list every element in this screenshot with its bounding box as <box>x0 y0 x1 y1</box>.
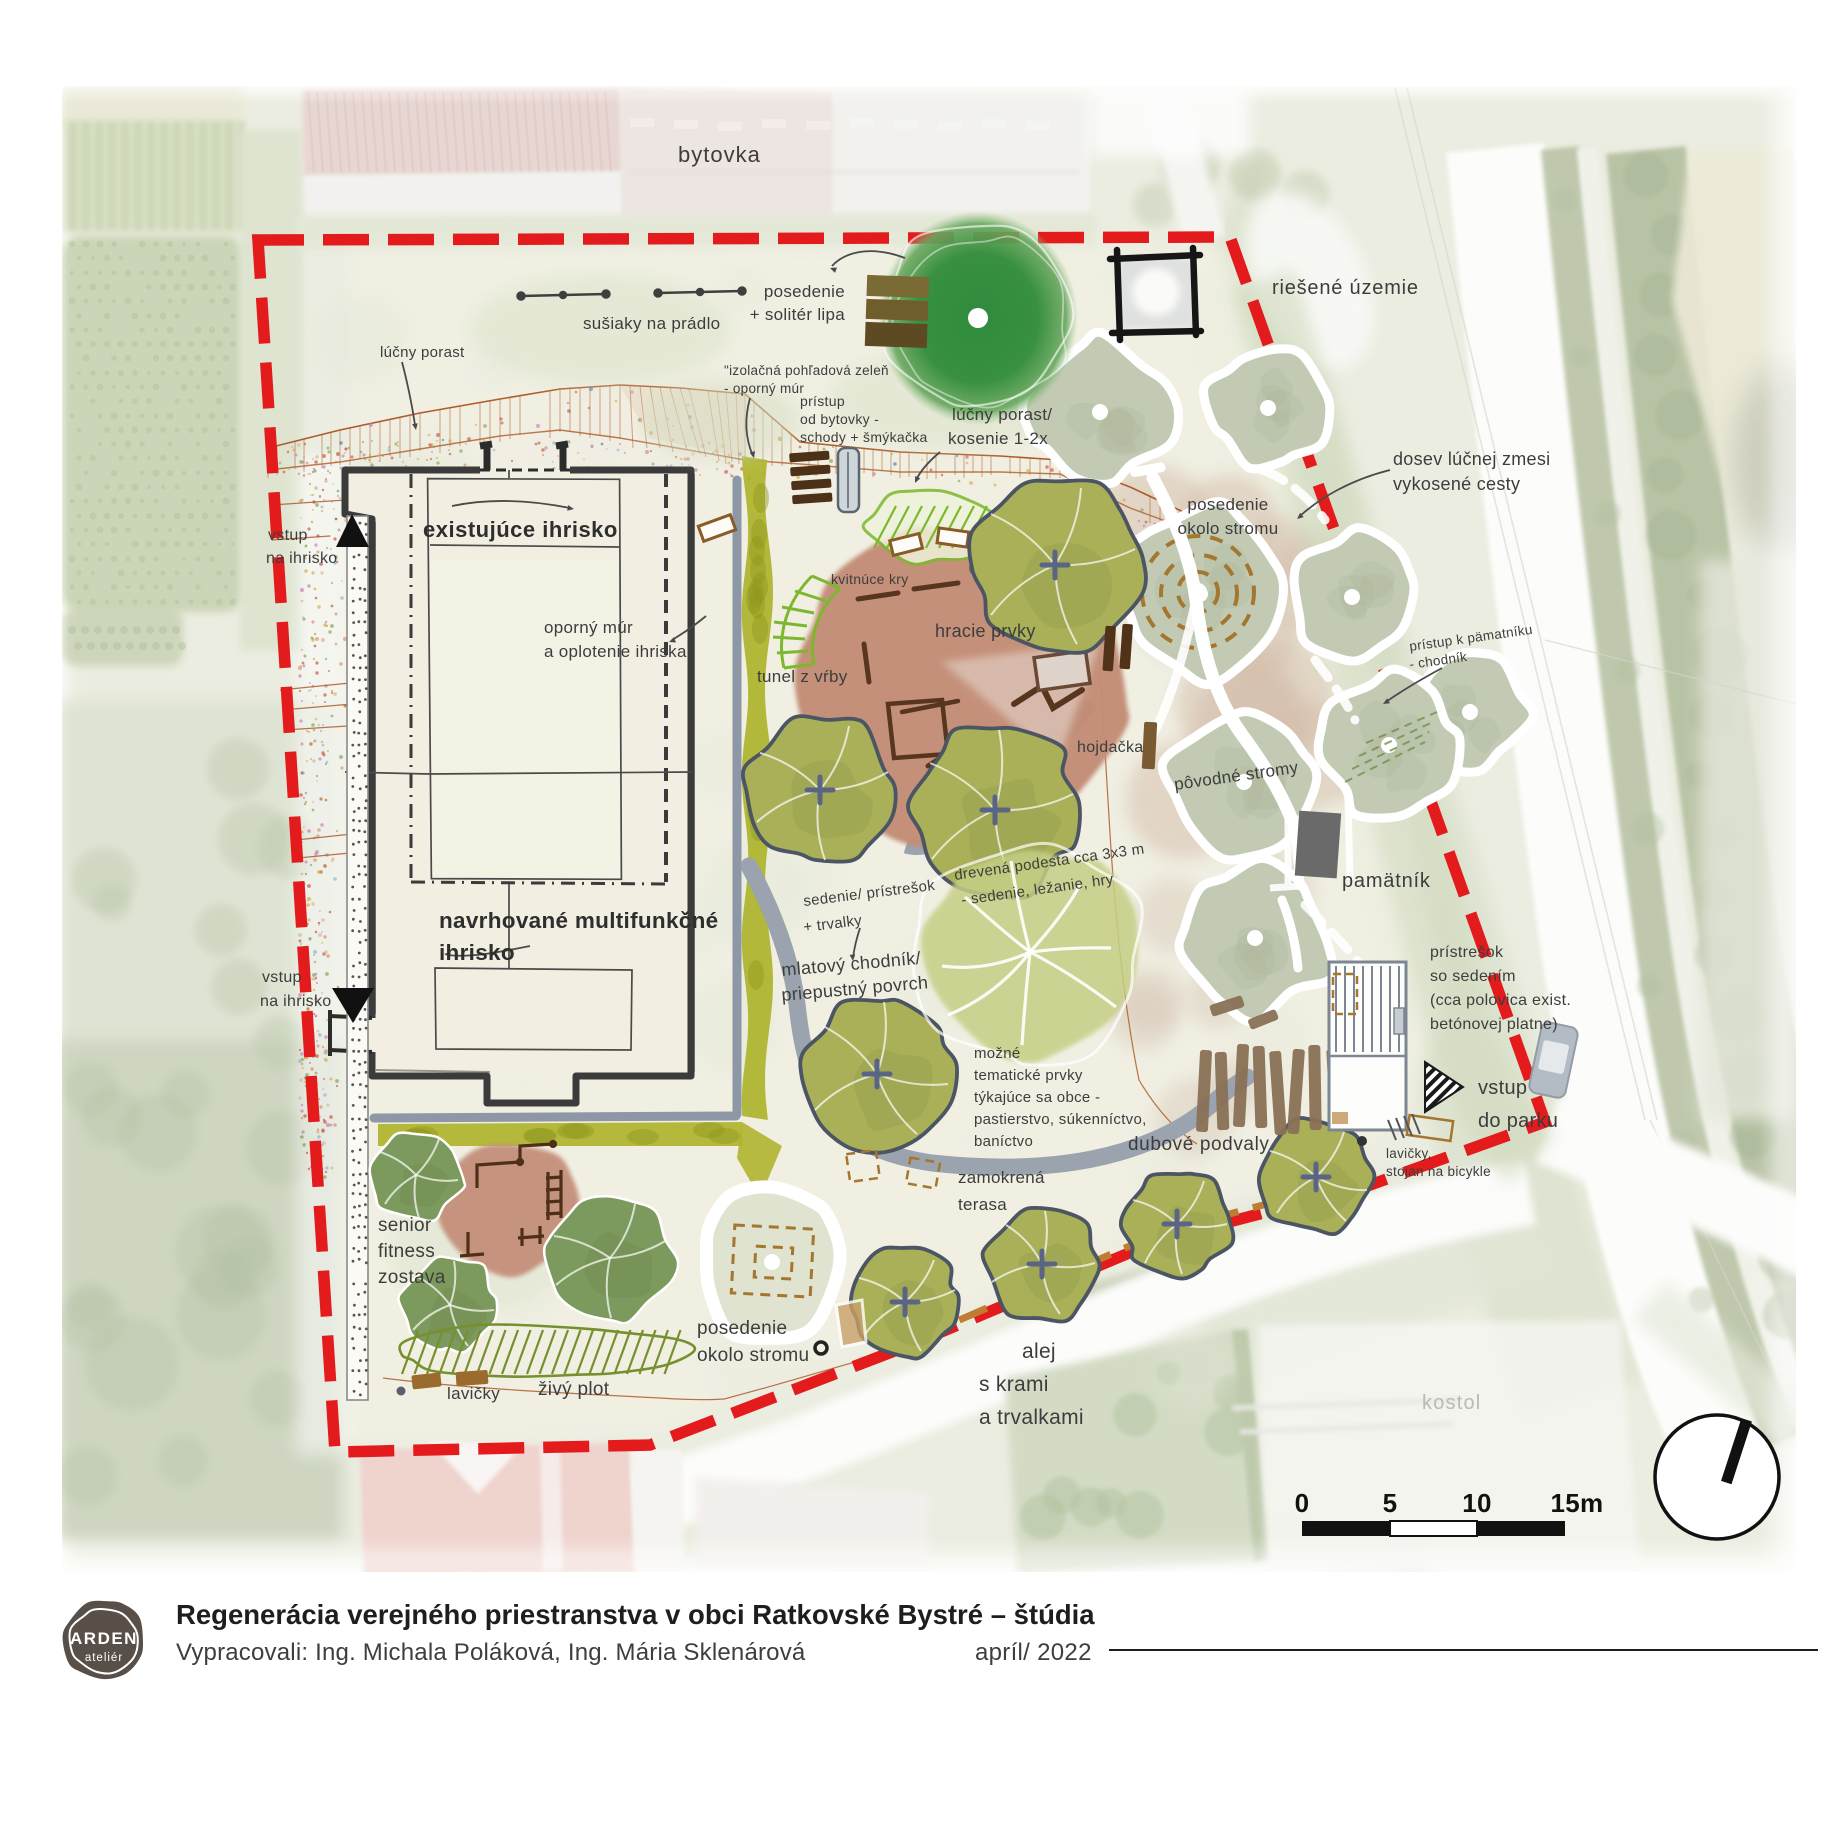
svg-text:posedenie: posedenie <box>764 282 845 301</box>
svg-text:okolo stromu: okolo stromu <box>1178 519 1279 538</box>
svg-text:a trvalkami: a trvalkami <box>979 1406 1084 1429</box>
svg-text:živý plot: živý plot <box>538 1379 610 1400</box>
svg-text:kostol: kostol <box>1422 1392 1481 1414</box>
svg-text:hracie prvky: hracie prvky <box>935 621 1036 641</box>
svg-text:lúčny porast/: lúčny porast/ <box>952 405 1052 424</box>
svg-text:vstup: vstup <box>268 527 308 544</box>
svg-text:prístrešok: prístrešok <box>1430 944 1504 961</box>
svg-text:hojdačka: hojdačka <box>1077 739 1143 756</box>
svg-text:dubové podvaly: dubové podvaly <box>1128 1134 1270 1155</box>
svg-text:existujúce ihrisko: existujúce ihrisko <box>423 517 618 542</box>
svg-text:+ solitér lipa: + solitér lipa <box>750 305 846 324</box>
svg-text:apríl/ 2022: apríl/ 2022 <box>975 1639 1092 1666</box>
svg-text:Regenerácia verejného priestra: Regenerácia verejného priestranstva v ob… <box>176 1599 1095 1630</box>
svg-text:5: 5 <box>1383 1488 1398 1518</box>
svg-text:"izolačná pohľadová zeleň: "izolačná pohľadová zeleň <box>724 363 889 378</box>
svg-text:dosev lúčnej zmesi: dosev lúčnej zmesi <box>1393 449 1550 469</box>
svg-text:kvitnúce kry: kvitnúce kry <box>831 571 909 587</box>
svg-text:fitness: fitness <box>378 1241 435 1262</box>
svg-text:týkajúce sa obce -: týkajúce sa obce - <box>974 1089 1100 1106</box>
svg-text:zostava: zostava <box>378 1267 446 1288</box>
svg-text:stojan na bicykle: stojan na bicykle <box>1386 1164 1491 1179</box>
svg-text:schody + šmýkačka: schody + šmýkačka <box>800 429 928 445</box>
svg-text:15m: 15m <box>1551 1488 1604 1518</box>
svg-text:vstup: vstup <box>262 969 302 986</box>
svg-text:alej: alej <box>1022 1340 1056 1363</box>
svg-text:terasa: terasa <box>958 1195 1007 1214</box>
svg-text:možné: možné <box>974 1045 1021 1062</box>
svg-text:so sedením: so sedením <box>1430 968 1516 985</box>
svg-text:pastierstvo, súkenníctvo,: pastierstvo, súkenníctvo, <box>974 1111 1147 1128</box>
svg-text:ihrisko: ihrisko <box>439 940 515 965</box>
svg-text:a oplotenie ihriska: a oplotenie ihriska <box>544 642 687 661</box>
svg-text:0: 0 <box>1295 1488 1310 1518</box>
svg-text:Vypracovali: Ing. Michala Polá: Vypracovali: Ing. Michala Poláková, Ing.… <box>176 1639 806 1666</box>
svg-text:tunel z vŕby: tunel z vŕby <box>757 667 848 686</box>
svg-text:oporný múr: oporný múr <box>544 618 633 637</box>
svg-text:s krami: s krami <box>979 1373 1049 1396</box>
svg-text:na ihrisko: na ihrisko <box>260 993 331 1010</box>
svg-text:prístup: prístup <box>800 393 845 409</box>
svg-text:sušiaky na prádlo: sušiaky na prádlo <box>583 314 720 333</box>
svg-text:do parku: do parku <box>1478 1110 1558 1132</box>
svg-text:okolo stromu: okolo stromu <box>697 1345 809 1366</box>
svg-text:vykosené cesty: vykosené cesty <box>1393 474 1520 494</box>
svg-text:vstup: vstup <box>1478 1077 1527 1099</box>
svg-text:kosenie 1-2x: kosenie 1-2x <box>948 429 1048 448</box>
svg-text:ateliér: ateliér <box>85 1652 123 1664</box>
svg-text:lavičky,: lavičky, <box>1386 1146 1432 1161</box>
svg-text:bytovka: bytovka <box>678 142 761 167</box>
svg-text:zamokrená: zamokrená <box>958 1168 1045 1187</box>
svg-text:lavičky: lavičky <box>447 1384 500 1403</box>
svg-text:posedenie: posedenie <box>697 1318 787 1339</box>
svg-text:od bytovky -: od bytovky - <box>800 411 879 427</box>
svg-text:10: 10 <box>1462 1488 1492 1518</box>
svg-text:riešené územie: riešené územie <box>1272 277 1419 299</box>
svg-text:tematické prvky: tematické prvky <box>974 1067 1083 1084</box>
svg-text:- oporný múr: - oporný múr <box>724 381 804 396</box>
svg-text:navrhované multifunkčné: navrhované multifunkčné <box>439 908 718 933</box>
svg-text:betónovej platne): betónovej platne) <box>1430 1016 1558 1033</box>
svg-text:posedenie: posedenie <box>1187 495 1268 514</box>
svg-text:senior: senior <box>378 1215 432 1236</box>
svg-text:(cca polovica exist.: (cca polovica exist. <box>1430 992 1571 1009</box>
svg-text:na ihrisko: na ihrisko <box>266 550 337 567</box>
svg-text:pamätník: pamätník <box>1342 870 1431 892</box>
svg-text:ARDEN: ARDEN <box>70 1629 138 1648</box>
svg-text:lúčny porast: lúčny porast <box>380 344 465 361</box>
svg-text:baníctvo: baníctvo <box>974 1133 1033 1150</box>
